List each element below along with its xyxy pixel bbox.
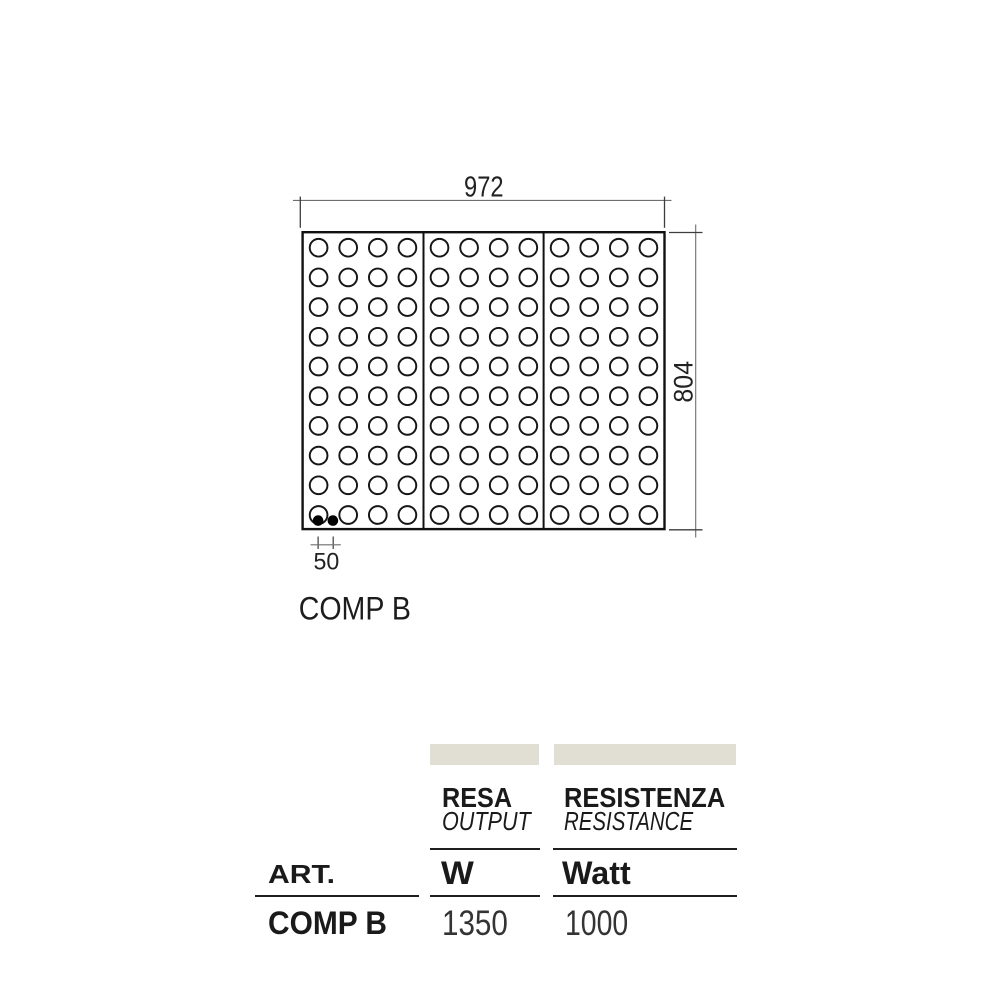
svg-text:972: 972 <box>464 170 504 202</box>
svg-text:804: 804 <box>668 361 698 403</box>
svg-text:COMP B: COMP B <box>299 592 411 627</box>
svg-text:50: 50 <box>314 548 340 575</box>
